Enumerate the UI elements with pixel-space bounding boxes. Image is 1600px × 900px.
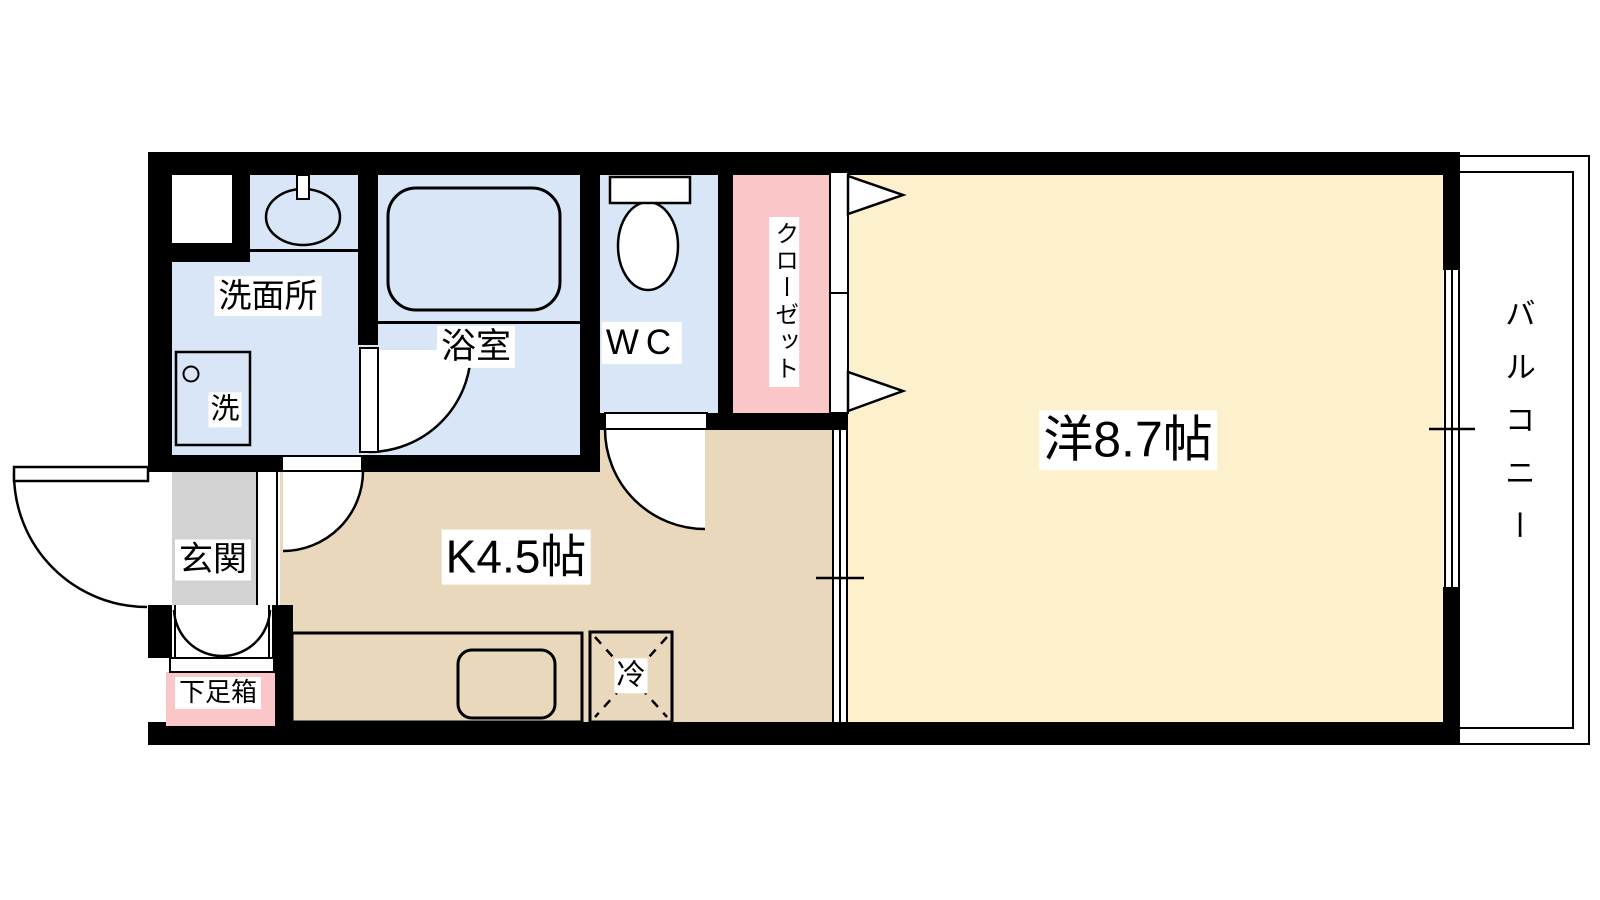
entrance-label: 玄関 — [175, 539, 251, 580]
washing-machine-drain-icon — [184, 367, 199, 382]
refrigerator-label: 冷 — [614, 658, 647, 693]
floor-plan: 洗面所 浴室 WC クローゼット 洋8.7帖 K4.5帖 玄関 下足箱 バルコニ… — [0, 0, 1600, 900]
entrance-door-swing — [14, 474, 147, 607]
bathroom-label: 浴室 — [437, 326, 515, 368]
faucet-icon — [297, 175, 309, 199]
washroom-door-leaf — [282, 456, 362, 471]
toilet-bowl-icon — [618, 202, 678, 290]
bathtub-deck-line — [378, 321, 580, 324]
washing-machine-label: 洗 — [208, 392, 241, 427]
western-room-label: 洋8.7帖 — [1039, 410, 1217, 470]
wc-door-swing — [605, 429, 705, 529]
bathtub-icon — [388, 188, 560, 310]
vanity-edge-line — [250, 249, 358, 252]
closet-door-fold-top — [848, 176, 903, 214]
wc-label: WC — [602, 322, 682, 364]
washroom-label: 洗面所 — [215, 276, 322, 316]
shoe-cabinet-area — [172, 605, 272, 658]
bathroom-door-leaf — [360, 348, 378, 452]
closet-door-fold-bottom — [848, 372, 903, 411]
shoe-box-label: 下足箱 — [175, 677, 261, 709]
entrance-door-leaf — [14, 467, 148, 481]
balcony-label: バルコニー — [1498, 294, 1536, 567]
kitchen-label: K4.5帖 — [442, 530, 591, 585]
wc-door-leaf — [605, 413, 707, 429]
linework-layer — [0, 0, 1600, 900]
shoe-cabinet-front — [170, 658, 274, 672]
toilet-tank-icon — [610, 177, 690, 203]
kitchen-counter-icon — [292, 633, 582, 722]
closet-label: クローゼット — [769, 217, 799, 387]
